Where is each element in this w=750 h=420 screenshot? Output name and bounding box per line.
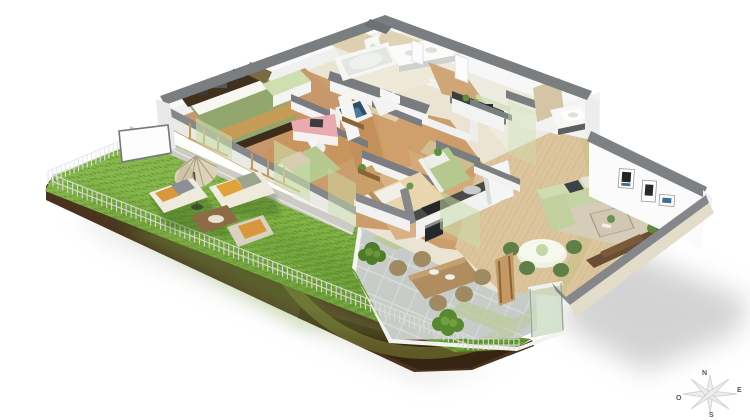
svg-text:S: S bbox=[709, 412, 714, 419]
svg-text:O: O bbox=[676, 395, 682, 402]
svg-text:E: E bbox=[737, 387, 742, 394]
svg-text:N: N bbox=[702, 370, 707, 377]
